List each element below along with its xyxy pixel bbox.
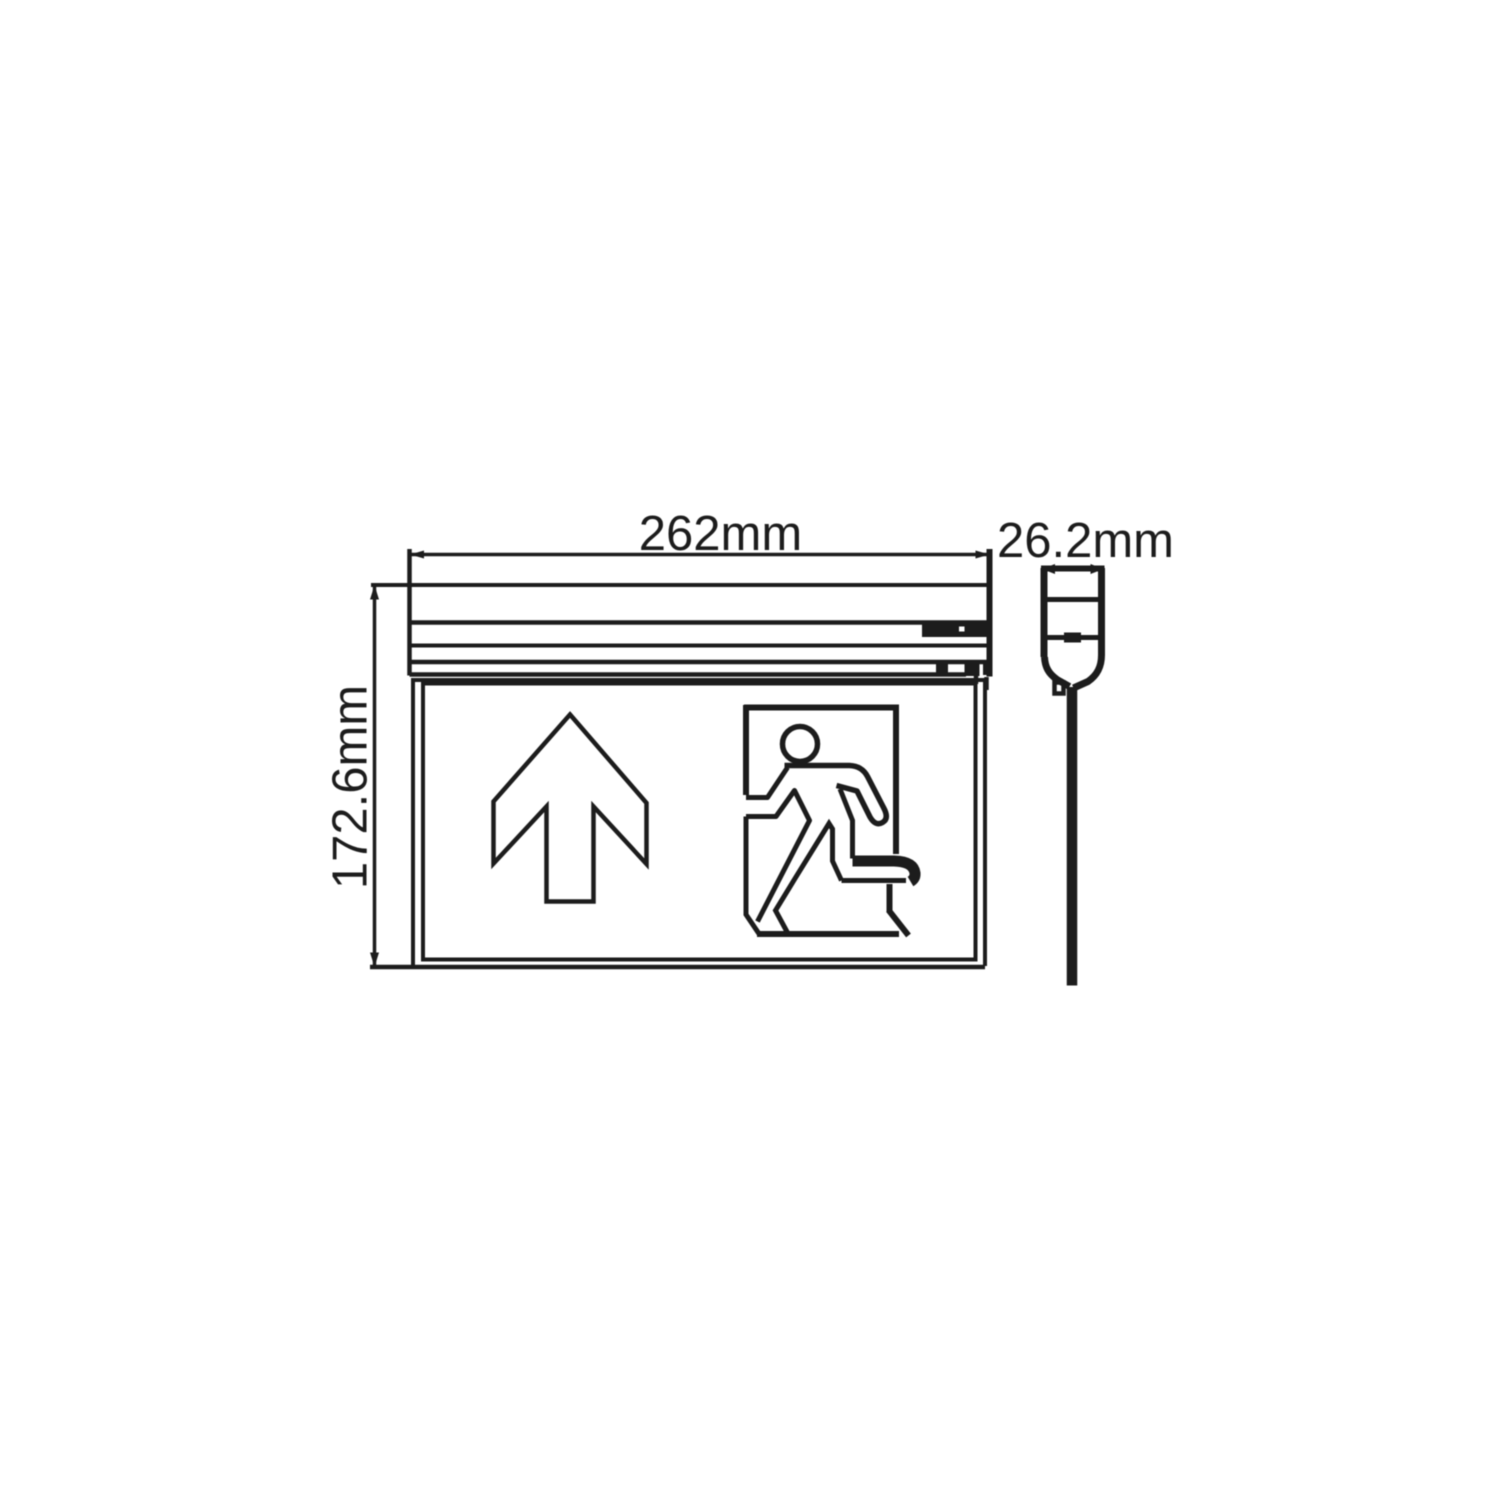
svg-text:172.6mm: 172.6mm [324,685,378,889]
svg-text:26.2mm: 26.2mm [997,514,1174,568]
